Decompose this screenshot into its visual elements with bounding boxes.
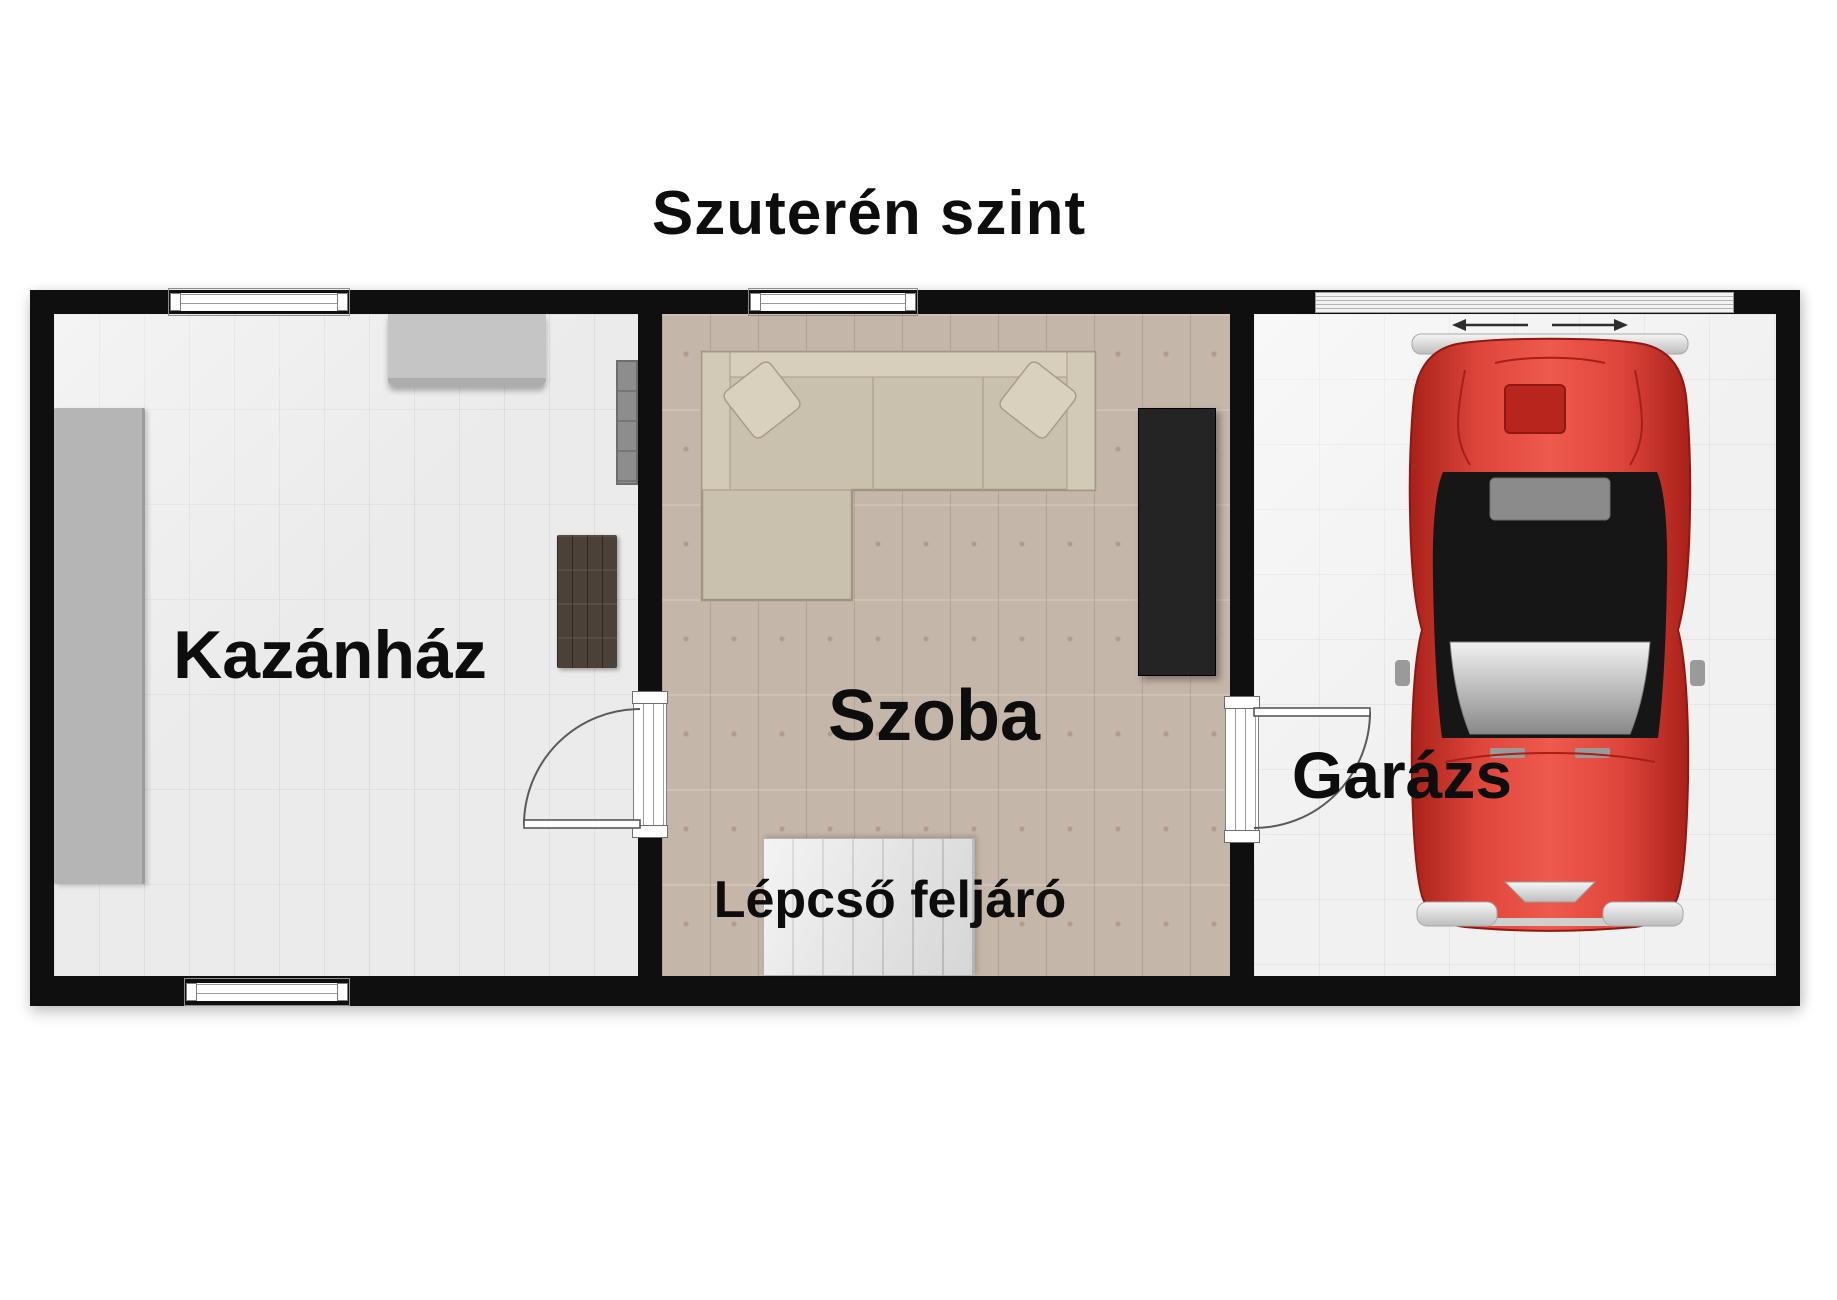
car-mirror-left: [1395, 660, 1410, 686]
door-jamb: [632, 691, 668, 704]
wardrobe: [1138, 408, 1216, 676]
sectional-sofa: [700, 350, 1097, 602]
red-car: [1395, 330, 1705, 940]
door-jamb: [1224, 830, 1260, 843]
floor-plan: Kazánház Szoba Lépcső feljáró Garázs: [30, 290, 1800, 1006]
window-top-kazanhaz: [168, 288, 350, 316]
room-label-garazs: Garázs: [1292, 737, 1512, 813]
car-rear-bumper-right: [1603, 902, 1683, 926]
door-jamb: [632, 825, 668, 838]
window-bottom-kazanhaz: [184, 978, 350, 1006]
room-label-kazanhaz: Kazánház: [173, 616, 487, 694]
door-jamb: [1224, 696, 1260, 709]
car-rear-bumper-left: [1417, 902, 1497, 926]
room-label-szoba: Szoba: [828, 675, 1040, 757]
stairs-label: Lépcső feljáró: [714, 870, 1067, 930]
car-roof-panel: [1490, 478, 1610, 520]
wall-cabinet: [388, 314, 546, 386]
radiator: [616, 360, 638, 485]
wood-rug: [557, 535, 617, 668]
page-title: Szuterén szint: [652, 178, 1086, 249]
car-rear-window: [1450, 642, 1650, 734]
door-frame-szoba-garazs: [1225, 700, 1259, 843]
car-hood-scoop: [1505, 385, 1565, 433]
boiler-counter: [54, 408, 145, 884]
garage-door: [1315, 292, 1734, 313]
door-frame-kazanhaz-szoba: [633, 695, 667, 838]
window-top-szoba: [748, 288, 918, 316]
car-mirror-right: [1690, 660, 1705, 686]
floorplan-canvas: Szuterén szint: [0, 0, 1837, 1300]
